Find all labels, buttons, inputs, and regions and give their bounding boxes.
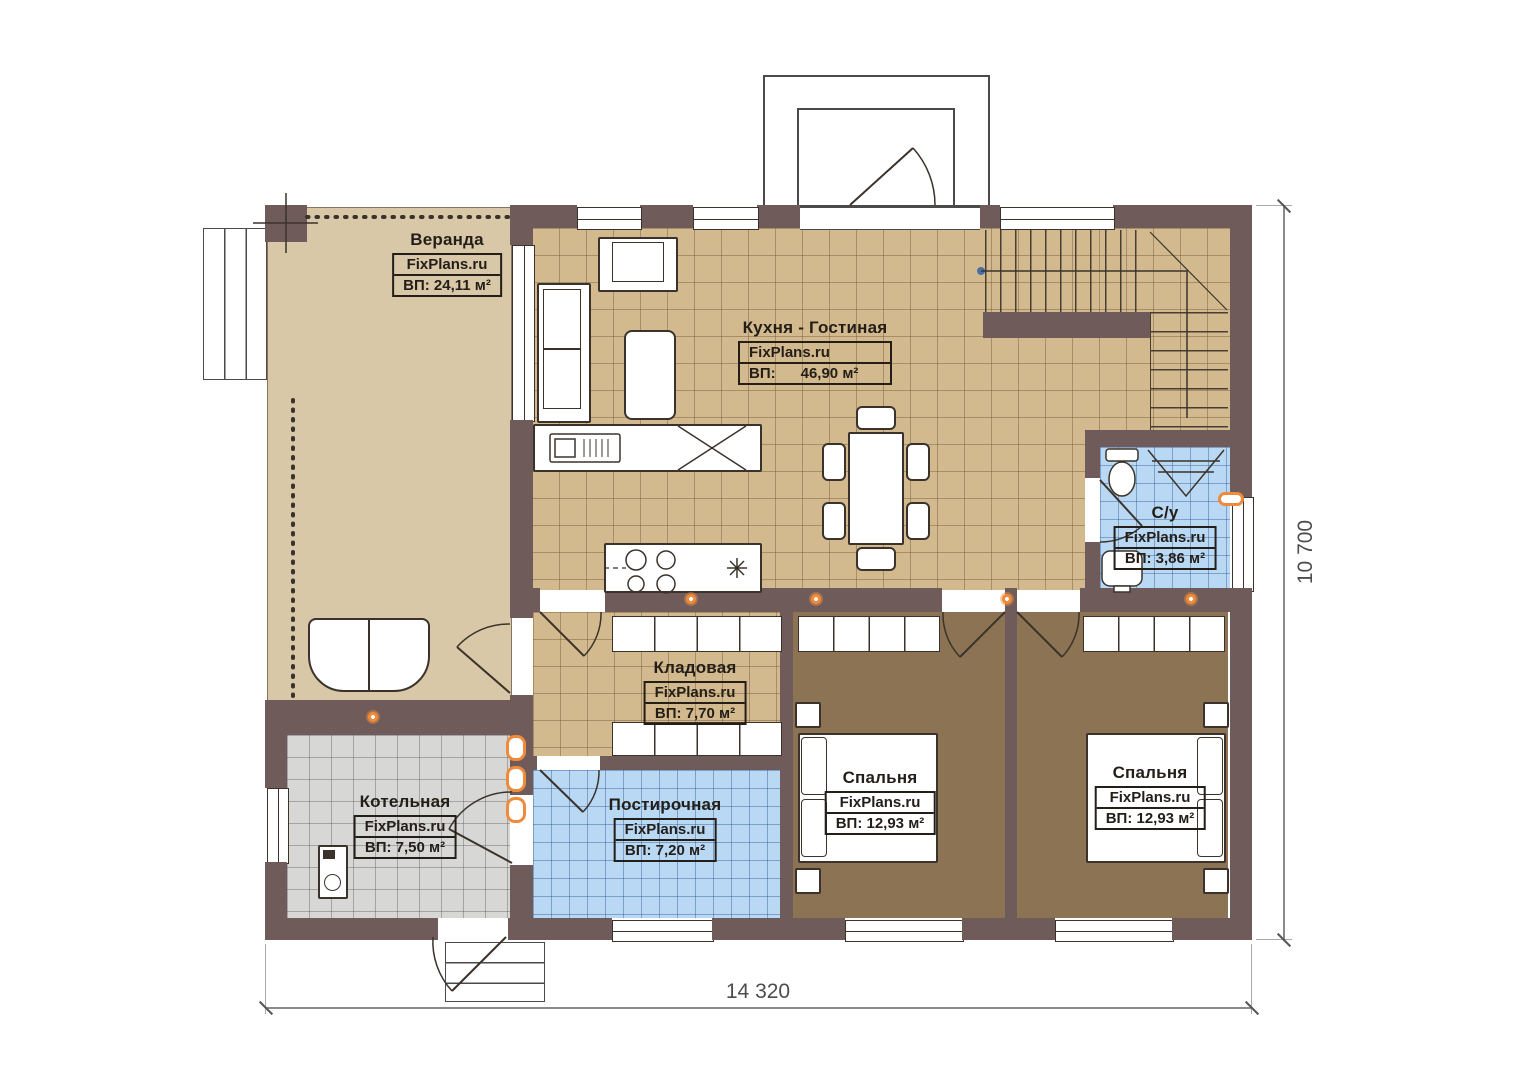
area-text: ВП: 7,50 м² — [356, 838, 455, 857]
bedroom1-pillow — [801, 799, 827, 857]
room-info-box: FixPlans.ru ВП: 7,50 м² — [354, 815, 457, 859]
wall-segment — [1230, 205, 1252, 497]
stairs-upper-flight — [985, 230, 1150, 312]
wall-segment — [265, 918, 438, 940]
radiator — [506, 766, 526, 792]
wall-segment — [712, 918, 845, 940]
entrance-opening — [800, 207, 980, 230]
boiler-panel — [323, 850, 335, 859]
exterior-steps-bottom — [445, 942, 545, 1002]
extension-line — [265, 944, 266, 1014]
room-label-bathroom: С/у FixPlans.ru ВП: 3,86 м² — [1114, 503, 1217, 570]
sofa-seat — [543, 289, 581, 349]
bedroom2-nightstand — [1203, 868, 1229, 894]
room-label-veranda: Веранда FixPlans.ru ВП: 24,11 м² — [392, 230, 502, 297]
room-title: С/у — [1151, 503, 1178, 523]
room-title: Постирочная — [609, 795, 722, 815]
stairs-right-flight — [1150, 312, 1228, 430]
coffee-table — [624, 330, 676, 420]
dimension-line-bottom — [265, 1007, 1252, 1009]
room-info-box: FixPlans.ru ВП: 24,11 м² — [392, 253, 502, 297]
light-dot — [1184, 592, 1198, 606]
armchair-seat — [612, 242, 664, 282]
brand-text: FixPlans.ru — [646, 683, 745, 704]
wall-segment — [510, 205, 533, 245]
radiator — [1218, 492, 1244, 506]
window — [1232, 497, 1254, 592]
area-text: ВП: 46,90 м² — [740, 364, 890, 383]
kitchen-island-counter — [533, 424, 762, 472]
room-label-bedroom1: Спальня FixPlans.ru ВП: 12,93 м² — [825, 768, 936, 835]
wall-segment — [1080, 588, 1252, 612]
room-label-bedroom2: Спальня FixPlans.ru ВП: 12,93 м² — [1095, 763, 1206, 830]
wall-segment — [1085, 430, 1230, 447]
window — [1000, 207, 1115, 230]
room-title: Кухня - Гостиная — [743, 318, 888, 338]
window — [845, 920, 964, 942]
room-label-storage: Кладовая FixPlans.ru ВП: 7,70 м² — [644, 658, 747, 725]
door-opening — [942, 590, 1005, 612]
room-title: Кладовая — [653, 658, 736, 678]
room-title: Спальня — [1113, 763, 1188, 783]
room-title: Спальня — [843, 768, 918, 788]
area-text: ВП: 12,93 м² — [1097, 809, 1204, 828]
room-info-box: FixPlans.ru ВП: 12,93 м² — [1095, 786, 1206, 830]
area-text: ВП: 12,93 м² — [827, 814, 934, 833]
dimension-bottom-label: 14 320 — [698, 980, 818, 1004]
bedroom1-wardrobe — [798, 616, 940, 652]
door-opening — [438, 920, 508, 940]
dining-chair — [822, 502, 846, 540]
dimension-right-label: 10 700 — [1294, 492, 1318, 612]
area-text: ВП: 24,11 м² — [394, 276, 500, 295]
wall-segment — [532, 588, 540, 612]
area-text: ВП: 3,86 м² — [1116, 549, 1215, 568]
extension-line — [1251, 944, 1252, 1014]
brand-text: FixPlans.ru — [1116, 528, 1215, 549]
dimension-line-right — [1283, 205, 1285, 940]
brand-text: FixPlans.ru — [740, 343, 890, 364]
wall-segment — [757, 205, 800, 228]
room-info-box: FixPlans.ru ВП: 7,70 м² — [644, 681, 747, 725]
room-title: Веранда — [410, 230, 483, 250]
wall-segment — [510, 420, 533, 618]
window — [612, 920, 714, 942]
dining-table — [848, 432, 904, 545]
room-label-kitchen-living: Кухня - Гостиная FixPlans.ru ВП: 46,90 м… — [738, 318, 892, 385]
radiator — [506, 797, 526, 823]
extension-line — [1256, 939, 1292, 940]
extension-line — [1256, 205, 1292, 206]
door-opening — [540, 590, 605, 612]
window — [267, 788, 289, 864]
kitchen-lower-counter — [604, 543, 762, 593]
storage-shelves-bottom — [612, 722, 782, 756]
garden-sofa-divider — [368, 620, 370, 690]
wall-segment — [1230, 590, 1252, 940]
floor-plan: Веранда FixPlans.ru ВП: 24,11 м² Кухня -… — [0, 0, 1528, 1080]
brand-text: FixPlans.ru — [394, 255, 500, 276]
brand-text: FixPlans.ru — [616, 820, 715, 841]
window — [577, 207, 642, 230]
exterior-steps-left — [203, 228, 267, 380]
wall-segment — [265, 862, 287, 940]
wall-segment — [1005, 612, 1017, 918]
door-opening — [512, 618, 533, 695]
stairs-half-wall — [983, 312, 1150, 338]
radiator — [506, 735, 526, 761]
light-dot — [684, 592, 698, 606]
room-info-box: FixPlans.ru ВП: 7,20 м² — [614, 818, 717, 862]
wall-segment — [265, 700, 510, 735]
sofa-seat — [543, 349, 581, 409]
room-label-laundry: Постирочная FixPlans.ru ВП: 7,20 м² — [609, 795, 722, 862]
area-text: ВП: 7,70 м² — [646, 704, 745, 723]
dining-chair — [822, 443, 846, 481]
wall-segment — [265, 700, 287, 788]
porch-inner-outline — [797, 108, 955, 207]
wall-segment — [640, 205, 693, 228]
wall-segment — [980, 205, 1000, 228]
room-info-box: FixPlans.ru ВП: 46,90 м² — [738, 341, 892, 385]
dining-chair — [906, 502, 930, 540]
window — [693, 207, 759, 230]
brand-text: FixPlans.ru — [1097, 788, 1204, 809]
wall-segment — [532, 205, 577, 228]
window — [512, 245, 535, 422]
dining-chair — [856, 547, 896, 571]
storage-shelves-top — [612, 616, 782, 652]
room-title: Котельная — [360, 792, 451, 812]
dining-chair — [906, 443, 930, 481]
wall-segment — [1172, 918, 1252, 940]
room-label-boiler: Котельная FixPlans.ru ВП: 7,50 м² — [354, 792, 457, 859]
bedroom2-wardrobe — [1083, 616, 1225, 652]
door-opening — [1017, 590, 1080, 612]
light-dot — [366, 710, 380, 724]
door-opening — [537, 756, 600, 770]
area-text: ВП: 7,20 м² — [616, 841, 715, 860]
room-info-box: FixPlans.ru ВП: 12,93 м² — [825, 791, 936, 835]
dining-chair — [856, 406, 896, 430]
window — [1055, 920, 1174, 942]
wall-segment — [508, 918, 612, 940]
brand-text: FixPlans.ru — [356, 817, 455, 838]
brand-text: FixPlans.ru — [827, 793, 934, 814]
door-opening — [1085, 478, 1100, 542]
room-info-box: FixPlans.ru ВП: 3,86 м² — [1114, 526, 1217, 570]
bedroom1-nightstand — [795, 702, 821, 728]
veranda-corner-column — [265, 205, 307, 242]
bedroom1-nightstand — [795, 868, 821, 894]
light-dot — [1000, 592, 1014, 606]
wall-segment — [962, 918, 1055, 940]
boiler-dial — [324, 874, 341, 891]
bedroom1-pillow — [801, 737, 827, 795]
light-dot — [809, 592, 823, 606]
bedroom2-nightstand — [1203, 702, 1229, 728]
